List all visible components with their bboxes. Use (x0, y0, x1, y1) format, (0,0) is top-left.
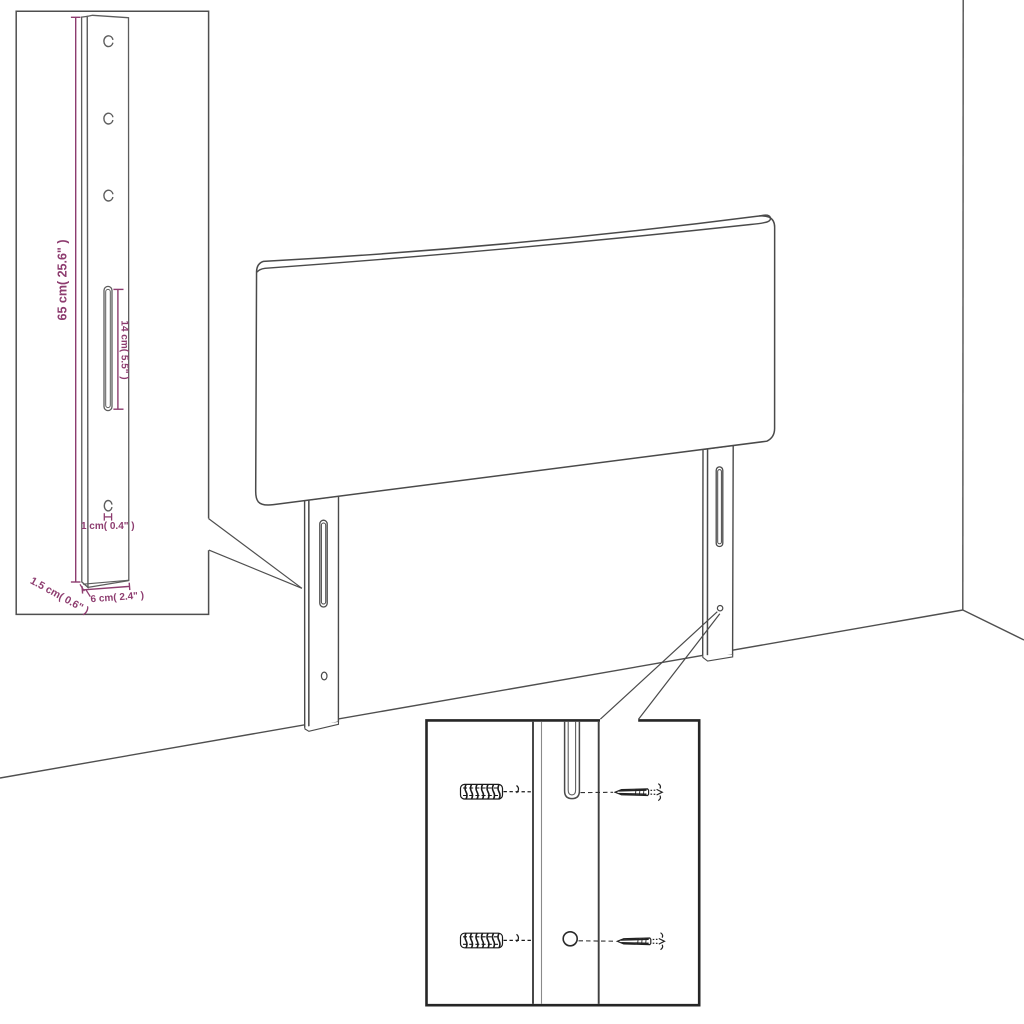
svg-text:14 cm( 5.5" ): 14 cm( 5.5" ) (118, 320, 129, 379)
svg-text:6 cm( 2.4" ): 6 cm( 2.4" ) (90, 590, 144, 605)
svg-text:65 cm( 25.6" ): 65 cm( 25.6" ) (56, 240, 70, 321)
svg-text:1 cm( 0.4" ): 1 cm( 0.4" ) (81, 521, 135, 532)
